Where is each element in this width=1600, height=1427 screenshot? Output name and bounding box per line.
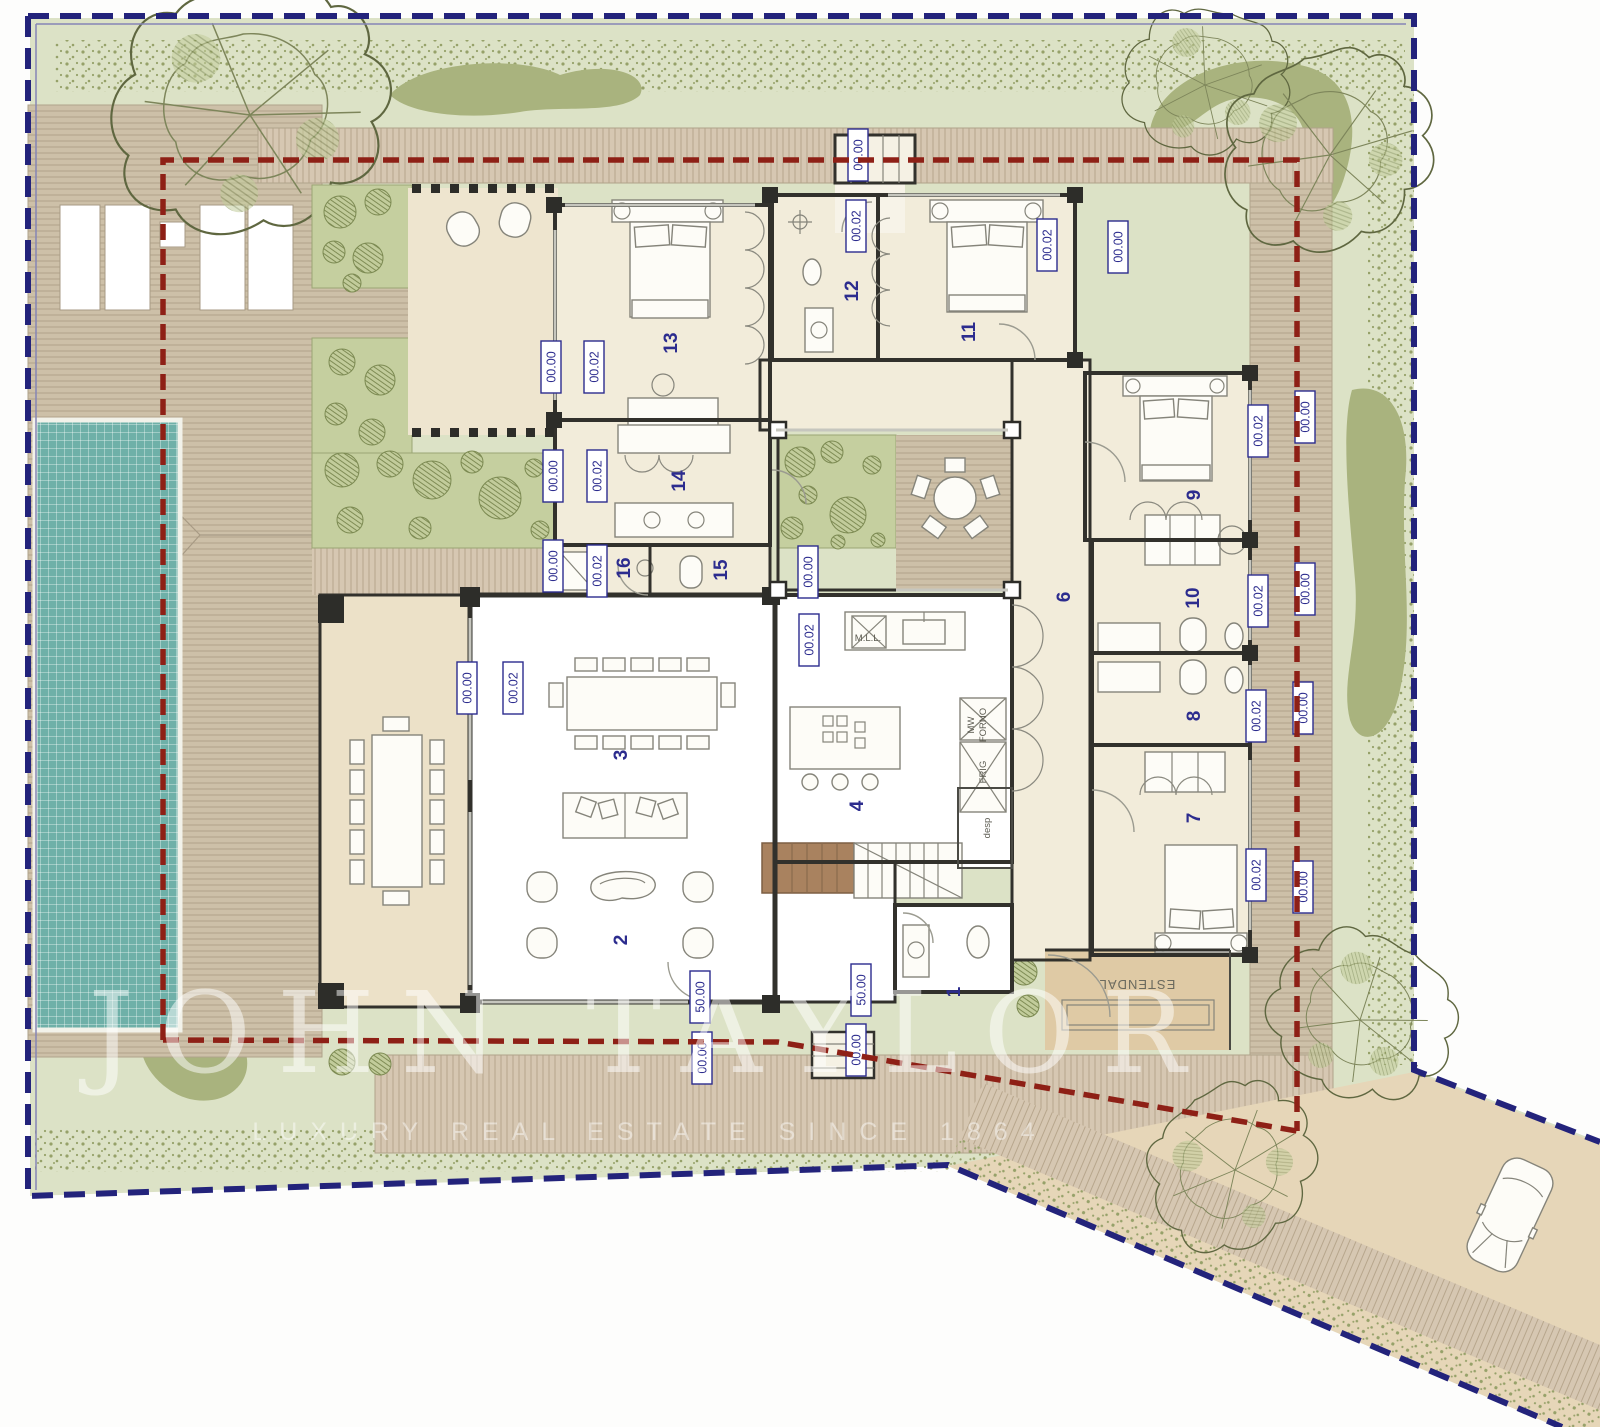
- elevation-marker: 00.02: [591, 555, 605, 586]
- corridor-6-fill: [1012, 360, 1090, 960]
- elevation-marker: 00.00: [547, 460, 561, 491]
- deck-north: [258, 128, 1333, 183]
- room-label-15: 15: [711, 559, 732, 581]
- elevation-marker: 00.02: [507, 672, 521, 703]
- room-label-7: 7: [1184, 813, 1205, 824]
- bed-room-11: [930, 200, 1043, 312]
- room-label-16: 16: [614, 557, 635, 578]
- elevation-marker: 00.00: [545, 351, 559, 382]
- deck-strip-nw: [312, 288, 412, 338]
- room-label-4: 4: [847, 800, 868, 811]
- deck-strip-mid: [312, 548, 555, 595]
- room-label-6: 6: [1054, 592, 1075, 603]
- room-label-pantry: desp: [982, 818, 993, 839]
- elevation-marker: 00.00: [1112, 231, 1126, 262]
- watermark-subtitle: LUXURY REAL ESTATE SINCE 1864: [252, 1118, 1047, 1146]
- appliance-label-forno: FORNO: [978, 708, 989, 742]
- terrace-northwest: [408, 188, 558, 435]
- elevation-marker: 00.00: [1299, 401, 1313, 432]
- room-label-14: 14: [669, 470, 690, 492]
- room-label-10: 10: [1183, 587, 1204, 608]
- elevation-marker: 00.02: [803, 624, 817, 655]
- appliance-label-mll: M.L.L.: [855, 633, 881, 644]
- elevation-marker: 00.02: [1252, 585, 1266, 616]
- stairs: [762, 843, 962, 898]
- floor-plan-image: 13 12 11 14 16 15 9 10 6 8 7 3 2 4 1 M.L…: [0, 0, 1600, 1427]
- room-label-12: 12: [842, 280, 863, 301]
- appliance-label-frig: FRIG: [978, 761, 989, 784]
- elevation-marker: 00.02: [1250, 859, 1264, 890]
- elevation-marker: 00.00: [802, 556, 816, 587]
- elevation-marker: 00.02: [1041, 229, 1055, 260]
- room-label-9: 9: [1184, 490, 1205, 501]
- swimming-pool: [35, 420, 180, 1030]
- elevation-marker: 00.02: [850, 210, 864, 241]
- floor-plan-canvas: 13 12 11 14 16 15 9 10 6 8 7 3 2 4 1 M.L…: [0, 0, 1600, 1427]
- outdoor-table-west-terrace: [350, 717, 444, 905]
- appliance-label-mw: MW: [966, 717, 977, 734]
- elevation-marker: 00.02: [1252, 415, 1266, 446]
- elevation-marker: 00.02: [1250, 700, 1264, 731]
- elevation-marker: 00.00: [461, 672, 475, 703]
- watermark-title: JOHN TAYLOR: [78, 969, 1211, 1099]
- corridor-north-fill: [760, 360, 1012, 430]
- room-label-2: 2: [611, 935, 632, 946]
- elevation-marker: 00.00: [1299, 573, 1313, 604]
- room-label-8: 8: [1184, 711, 1205, 722]
- room-label-11: 11: [959, 322, 980, 343]
- dining-table-room-3: [549, 658, 735, 749]
- room-label-3: 3: [611, 750, 632, 761]
- room-label-13: 13: [661, 332, 682, 353]
- elevation-marker: 00.02: [588, 351, 602, 382]
- elevation-marker: 00.02: [591, 460, 605, 491]
- elevation-marker: 00.00: [547, 550, 561, 581]
- elevation-marker: 00.00: [852, 139, 866, 170]
